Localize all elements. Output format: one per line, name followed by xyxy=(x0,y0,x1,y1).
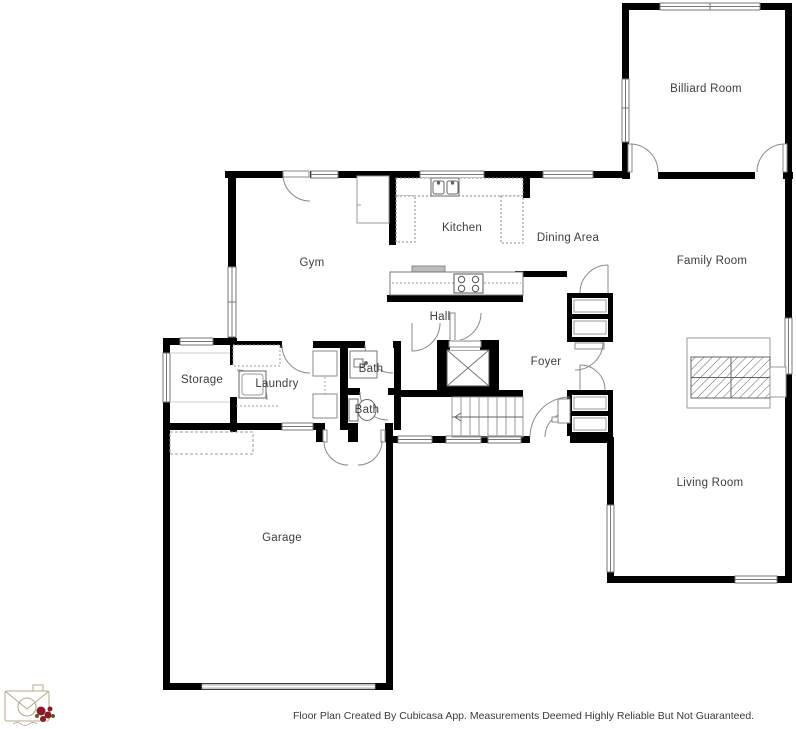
door-hall-foyer xyxy=(450,313,481,341)
window-storage-top xyxy=(180,338,213,345)
room-label-family: Family Room xyxy=(677,255,747,267)
room-label-garage: Garage xyxy=(262,532,302,544)
camera-with-roses-logo xyxy=(3,678,59,728)
room-label-living: Living Room xyxy=(677,477,744,489)
window-storage-left xyxy=(163,353,170,402)
door-billiard-left xyxy=(628,144,658,172)
door-closet-lower-leaf xyxy=(558,399,570,423)
room-label-bath-upper: Bath xyxy=(359,363,384,375)
room-label-dining: Dining Area xyxy=(537,232,599,244)
room-label-billiard: Billiard Room xyxy=(670,83,742,95)
door-garage-1 xyxy=(323,430,348,465)
door-laundry xyxy=(282,345,310,373)
disclaimer-text: Floor Plan Created By Cubicasa App. Meas… xyxy=(293,710,754,722)
elevator-shaft xyxy=(437,340,499,395)
door-gym xyxy=(283,171,310,201)
room-label-laundry: Laundry xyxy=(255,378,298,390)
window-garage-top xyxy=(282,423,313,430)
refrigerator-cabinet xyxy=(357,176,389,223)
door-hall-left xyxy=(412,323,440,351)
door-billiard-right xyxy=(757,144,787,172)
window-gym-left xyxy=(228,267,236,337)
room-label-storage: Storage xyxy=(181,374,223,386)
staircase xyxy=(452,397,523,437)
window-living-left xyxy=(607,505,614,572)
window-billiard-left xyxy=(622,79,629,142)
room-label-bath-lower: Bath xyxy=(355,404,380,416)
door-garage-2 xyxy=(358,430,385,465)
closet-shelves xyxy=(574,300,606,430)
door-closet-upper xyxy=(575,342,604,370)
door-dining-foyer xyxy=(580,265,608,293)
window-foyer-bottom-1 xyxy=(398,436,432,443)
window-family-right xyxy=(785,318,792,374)
floor-plan-page: Billiard Room Family Room Living Room Gy… xyxy=(0,0,796,729)
room-label-hall: Hall xyxy=(430,311,451,323)
laundry-shelf xyxy=(233,345,280,366)
room-label-kitchen: Kitchen xyxy=(442,222,482,234)
window-dining-top xyxy=(543,171,593,178)
floor-plan-drawing xyxy=(0,0,796,729)
window-kitchen-top xyxy=(420,171,484,178)
stove xyxy=(454,274,483,293)
room-label-gym: Gym xyxy=(299,257,324,269)
room-label-foyer: Foyer xyxy=(531,356,562,368)
fireplace xyxy=(687,338,786,408)
window-billiard-top xyxy=(660,3,760,10)
window-gym-top xyxy=(311,171,338,178)
garage-door xyxy=(202,684,375,689)
hall-cabinets xyxy=(313,351,337,418)
kitchen-sink xyxy=(431,178,459,196)
window-living-bottom xyxy=(735,576,777,583)
rose-cluster xyxy=(35,707,55,723)
